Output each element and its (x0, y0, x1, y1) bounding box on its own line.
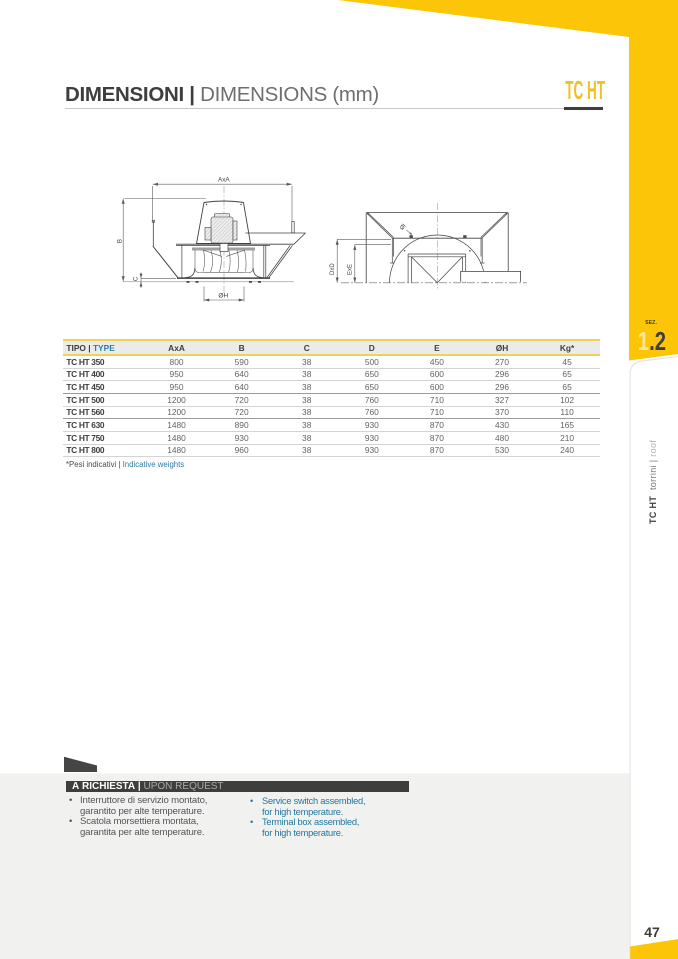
svg-text:B: B (117, 239, 124, 243)
svg-text:AxA: AxA (218, 177, 230, 184)
svg-text:C: C (134, 276, 140, 281)
svg-text:ExE: ExE (348, 264, 354, 275)
svg-text:ØH: ØH (218, 293, 228, 300)
svg-text:DxD: DxD (330, 263, 336, 275)
